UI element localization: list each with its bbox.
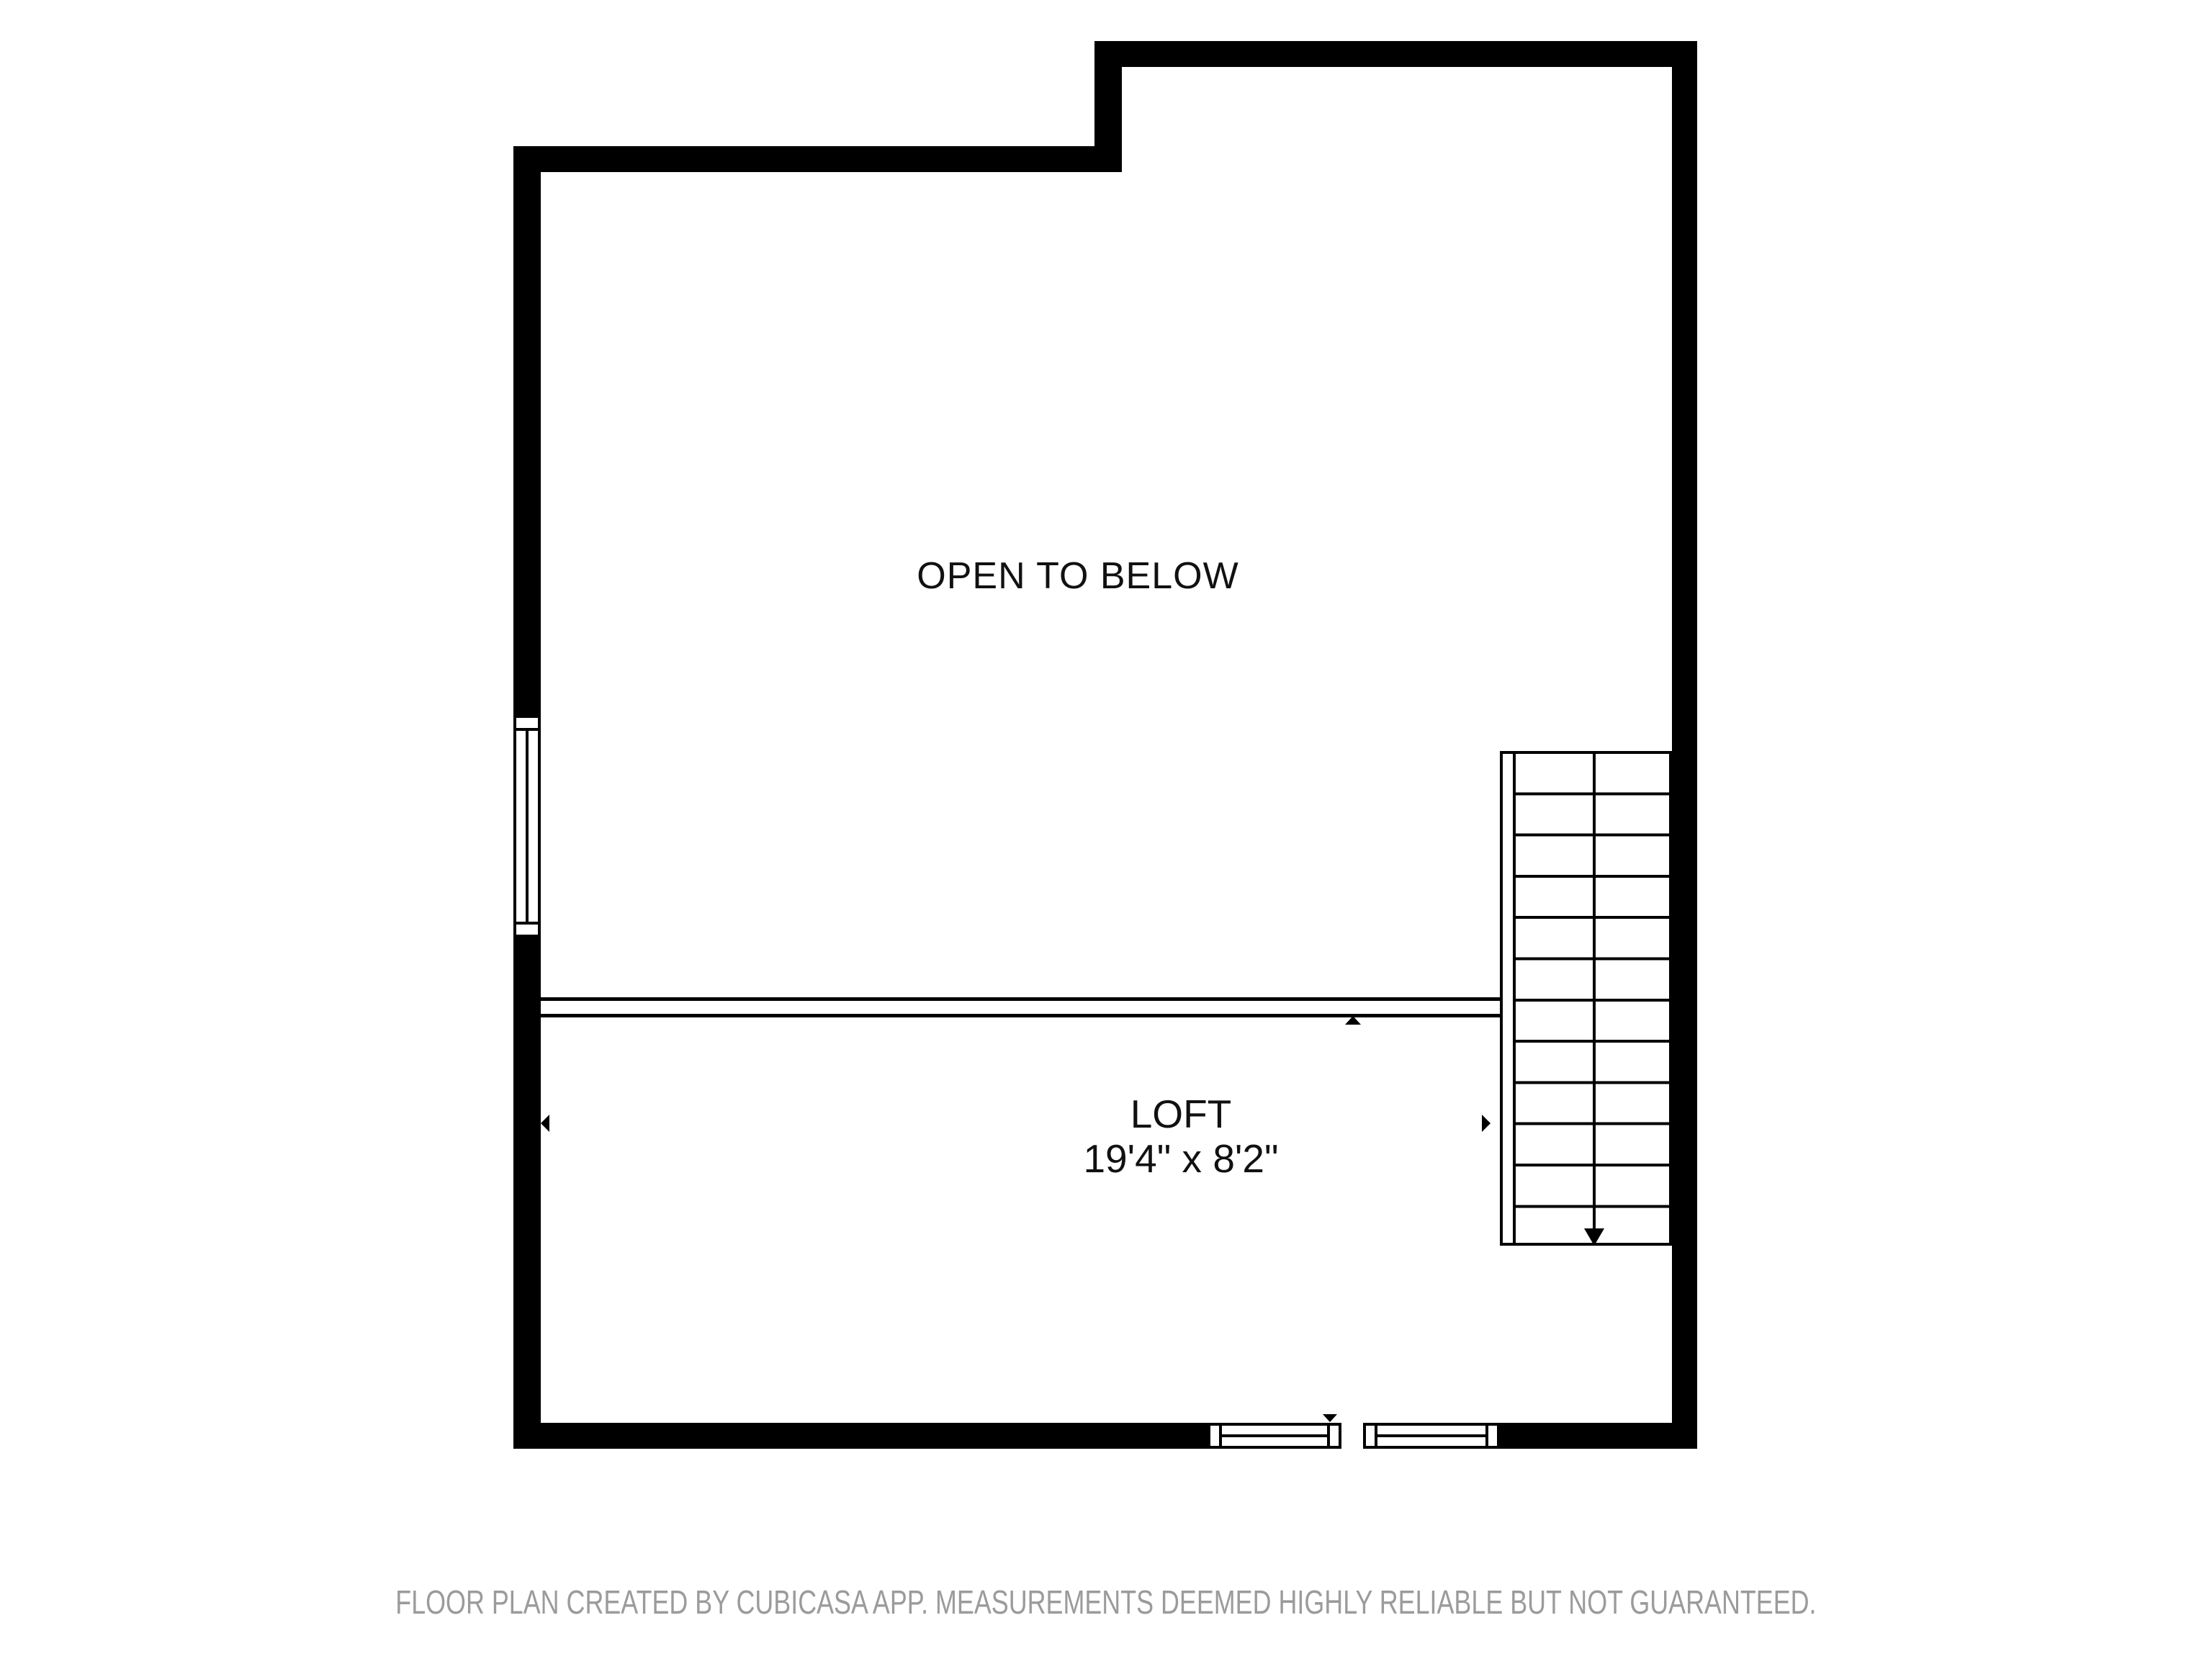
room-label-open-to-below: OPEN TO BELOW <box>790 554 1366 598</box>
dimension-arrow-left-icon <box>541 1115 549 1132</box>
loft-railing <box>541 997 1500 1017</box>
window-left-wall <box>513 715 541 938</box>
wall-top-right <box>1094 41 1697 67</box>
wall-right <box>1672 41 1697 1449</box>
floor-plan-page: OPEN TO BELOW LOFT 19'4" x 8'2" FLOOR PL… <box>0 0 2212 1659</box>
window-glass-line <box>1375 1434 1488 1437</box>
footer-disclaimer-text: FLOOR PLAN CREATED BY CUBICASA APP. MEAS… <box>395 1583 1816 1622</box>
window-glass-line <box>526 728 529 925</box>
loft-dimensions: 19'4" x 8'2" <box>893 1136 1469 1181</box>
wall-left-lower <box>513 938 541 1449</box>
dimension-arrow-right-icon <box>1482 1115 1491 1132</box>
wall-bottom-right <box>1500 1423 1697 1449</box>
dimension-arrow-up-icon <box>1345 1016 1361 1025</box>
wall-left-upper <box>513 146 541 715</box>
wall-top-left <box>513 146 1122 172</box>
room-label-loft: LOFT 19'4" x 8'2" <box>893 1092 1469 1181</box>
dimension-arrow-down-icon <box>1323 1414 1337 1422</box>
loft-name: LOFT <box>893 1092 1469 1136</box>
stair-direction-down-arrow-icon <box>1584 1228 1604 1246</box>
wall-bottom-left <box>513 1423 1208 1449</box>
footer-disclaimer: FLOOR PLAN CREATED BY CUBICASA APP. MEAS… <box>0 1583 2212 1622</box>
stair-center-line <box>1593 751 1596 1230</box>
window-glass-line <box>1219 1434 1330 1437</box>
window-bottom-left <box>1208 1423 1341 1449</box>
window-bottom-right <box>1363 1423 1500 1449</box>
